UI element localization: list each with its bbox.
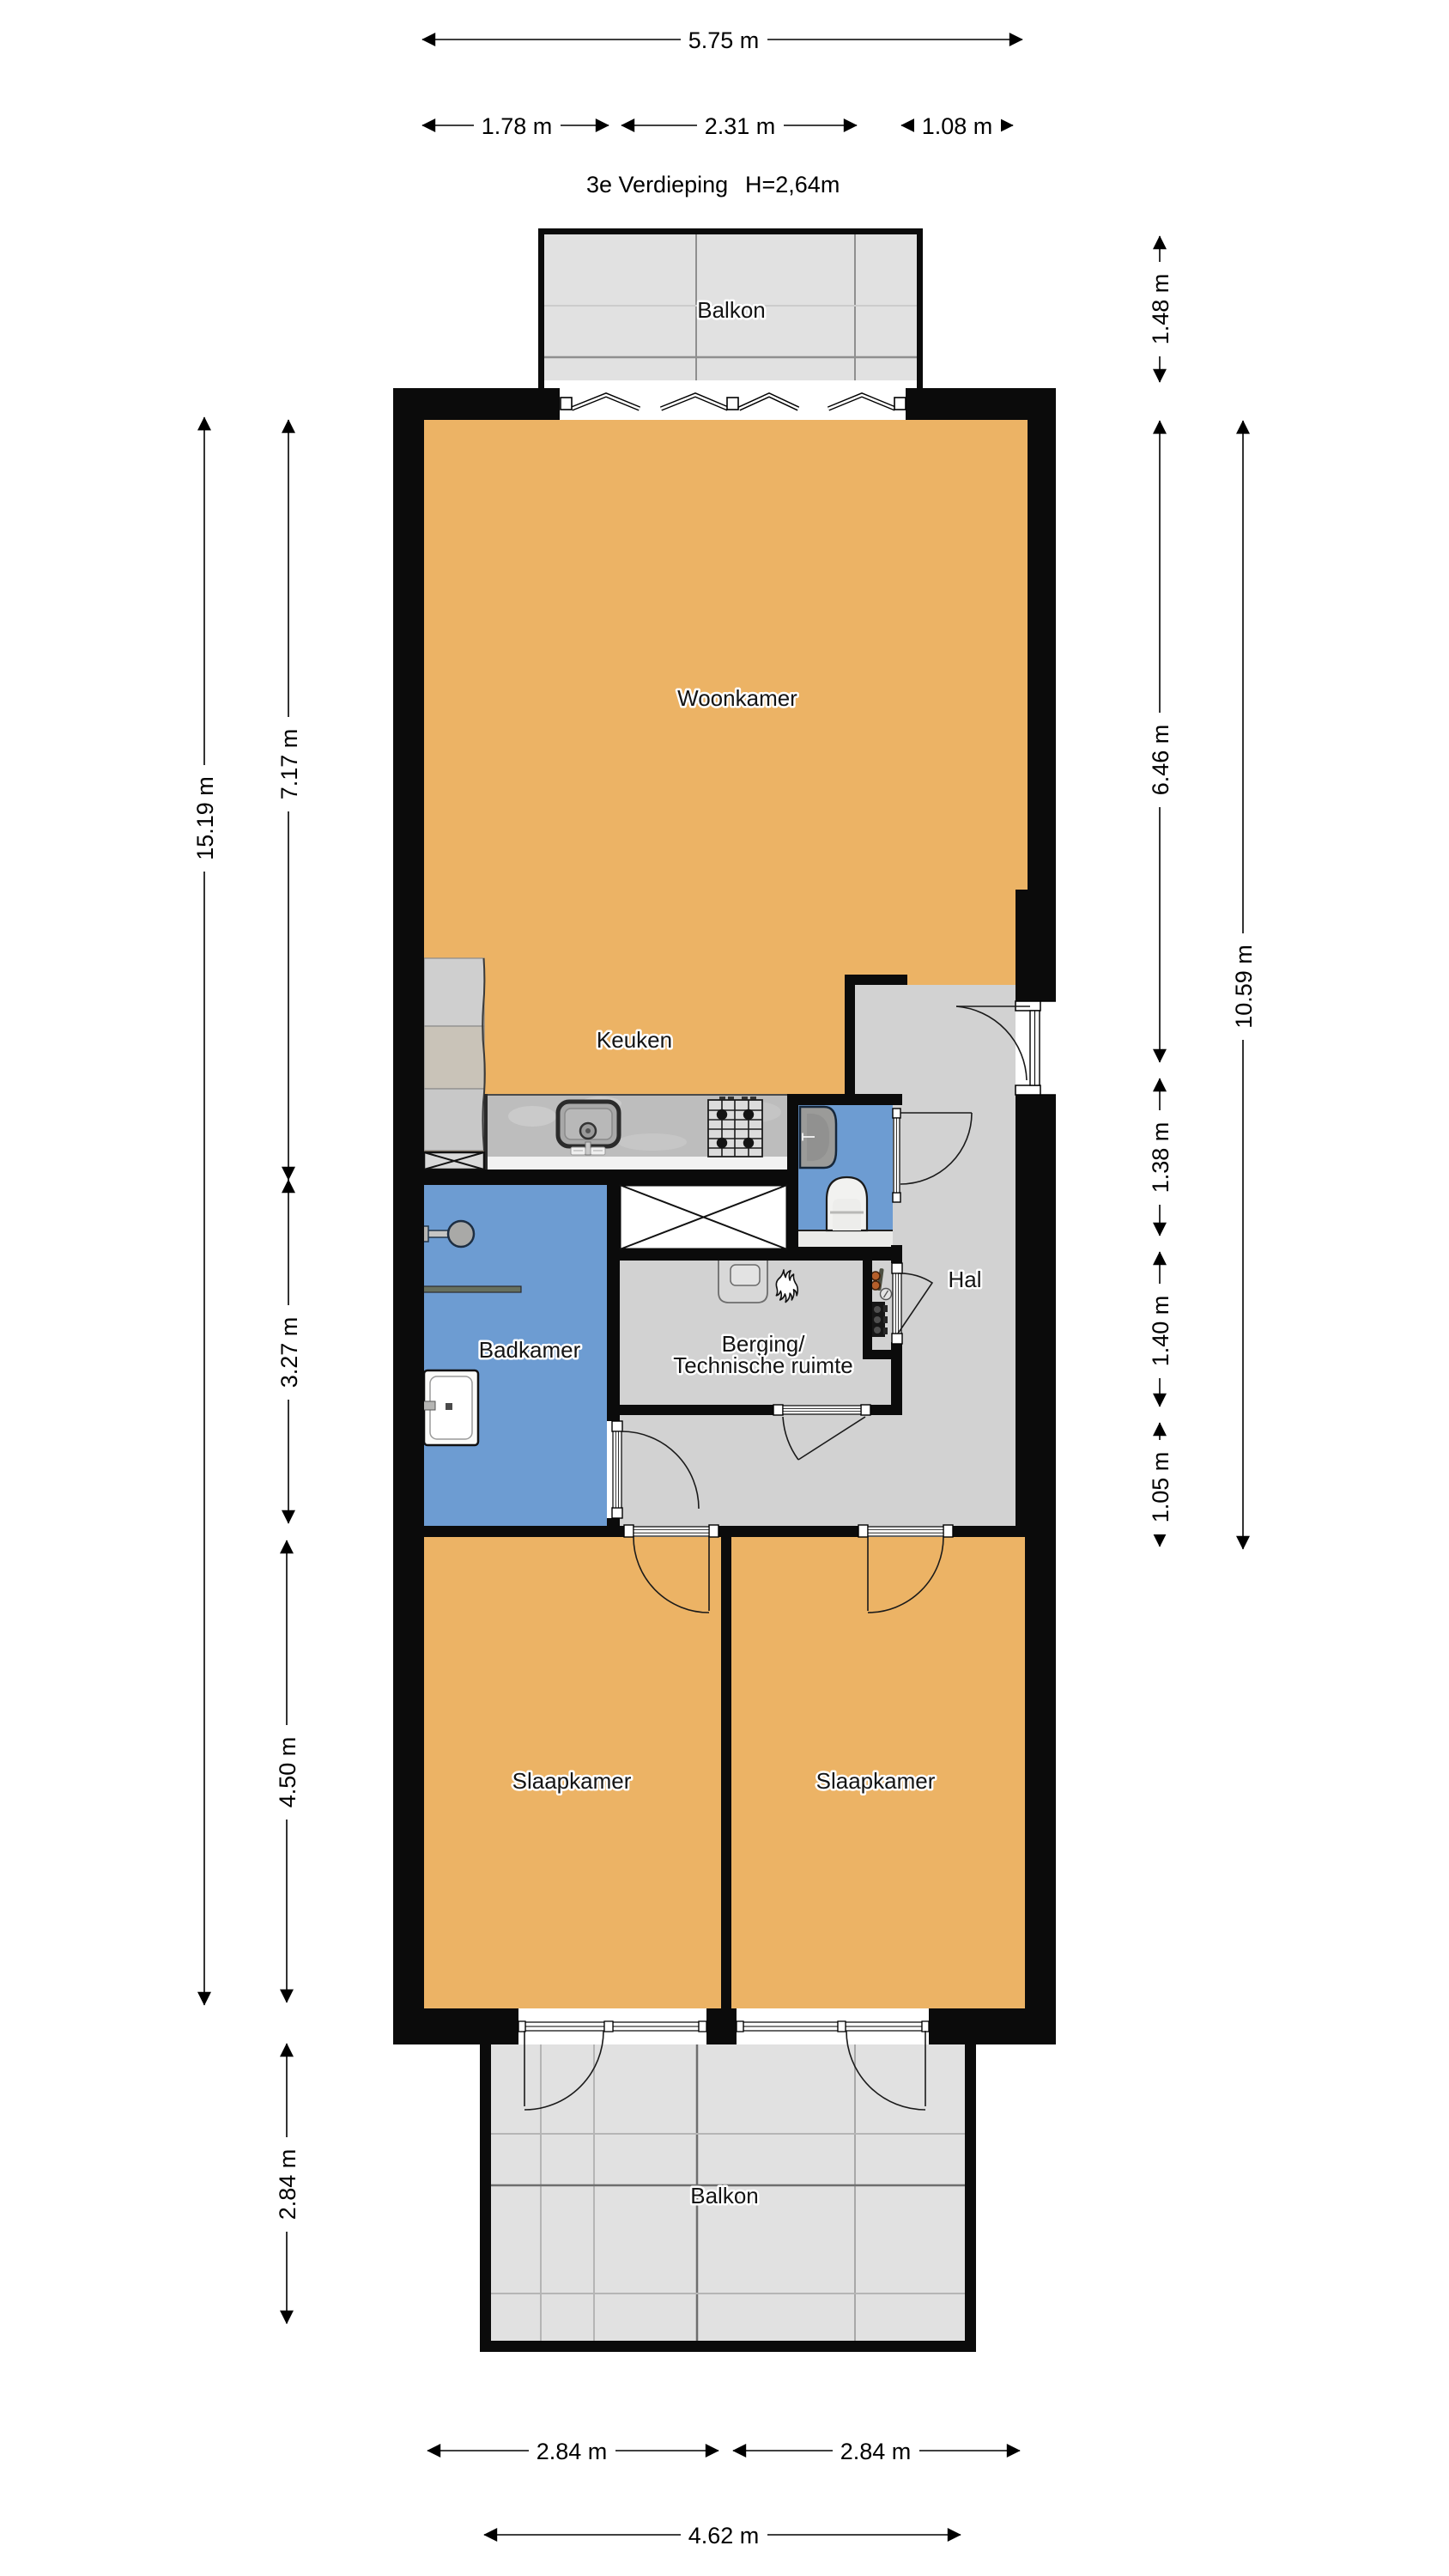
- svg-text:1.38 m: 1.38 m: [1148, 1122, 1173, 1194]
- svg-text:Technische ruimte: Technische ruimte: [673, 1352, 853, 1378]
- svg-text:Balkon: Balkon: [697, 297, 766, 323]
- svg-text:7.17 m: 7.17 m: [276, 729, 302, 800]
- svg-text:Slaapkamer: Slaapkamer: [512, 1768, 632, 1794]
- svg-text:5.75 m: 5.75 m: [688, 27, 760, 53]
- svg-text:Woonkamer: Woonkamer: [677, 685, 797, 711]
- svg-text:2.84 m: 2.84 m: [537, 2439, 608, 2464]
- svg-text:2.84 m: 2.84 m: [275, 2149, 300, 2221]
- svg-text:2.31 m: 2.31 m: [705, 113, 776, 139]
- svg-text:4.50 m: 4.50 m: [275, 1737, 300, 1808]
- svg-text:Slaapkamer: Slaapkamer: [816, 1768, 936, 1794]
- svg-text:1.08 m: 1.08 m: [922, 113, 993, 139]
- svg-text:Keuken: Keuken: [597, 1027, 672, 1053]
- svg-text:3e Verdieping: 3e Verdieping: [586, 172, 728, 197]
- svg-text:6.46 m: 6.46 m: [1148, 725, 1173, 796]
- svg-text:15.19 m: 15.19 m: [192, 776, 218, 860]
- svg-text:H=2,64m: H=2,64m: [745, 172, 840, 197]
- svg-text:1.78 m: 1.78 m: [482, 113, 553, 139]
- svg-text:Balkon: Balkon: [690, 2183, 759, 2208]
- svg-text:1.48 m: 1.48 m: [1148, 274, 1173, 345]
- svg-text:10.59 m: 10.59 m: [1231, 945, 1257, 1029]
- svg-text:2.84 m: 2.84 m: [840, 2439, 912, 2464]
- svg-text:1.40 m: 1.40 m: [1148, 1296, 1173, 1367]
- svg-text:1.05 m: 1.05 m: [1148, 1452, 1173, 1523]
- svg-text:4.62 m: 4.62 m: [688, 2523, 760, 2549]
- svg-text:Badkamer: Badkamer: [479, 1337, 581, 1363]
- svg-text:3.27 m: 3.27 m: [276, 1317, 302, 1388]
- svg-text:Hal: Hal: [948, 1267, 981, 1292]
